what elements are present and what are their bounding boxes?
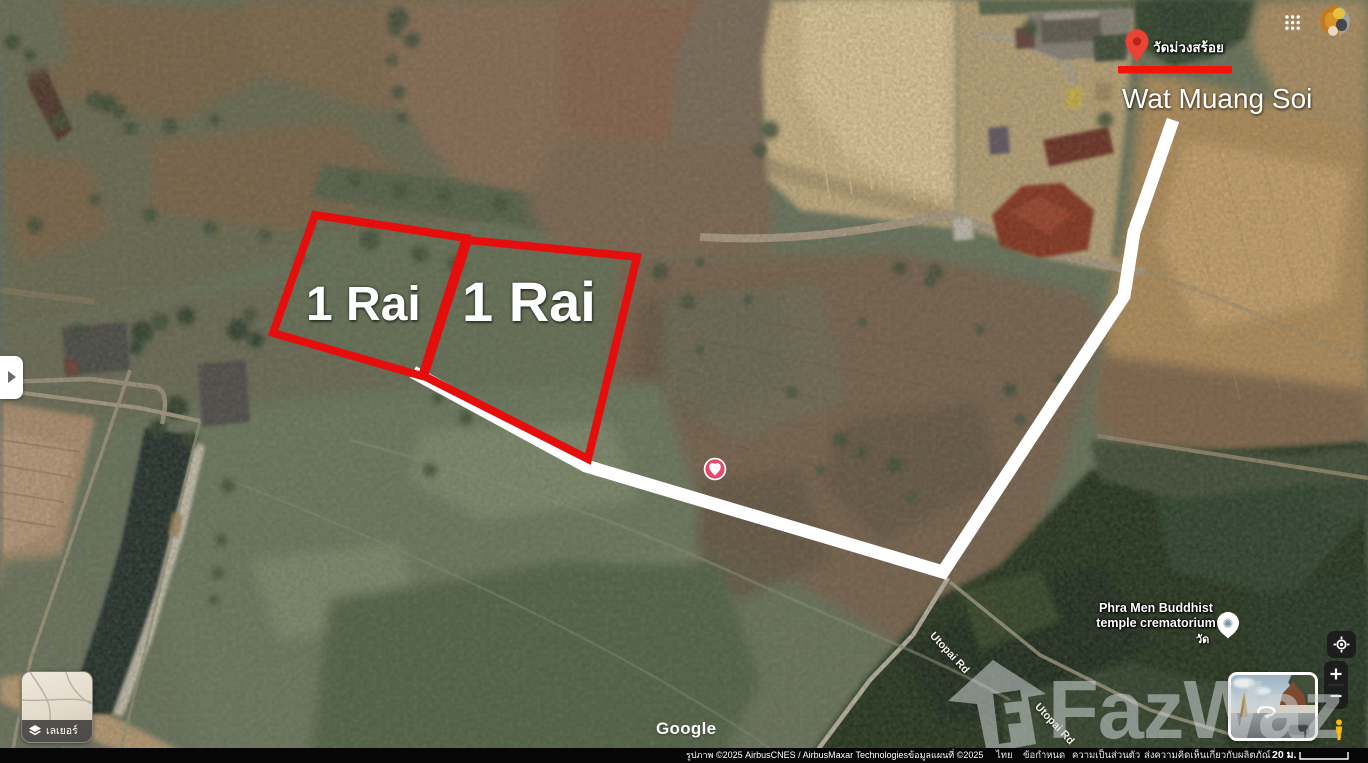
svg-text:FazWaz: FazWaz	[1048, 663, 1343, 755]
